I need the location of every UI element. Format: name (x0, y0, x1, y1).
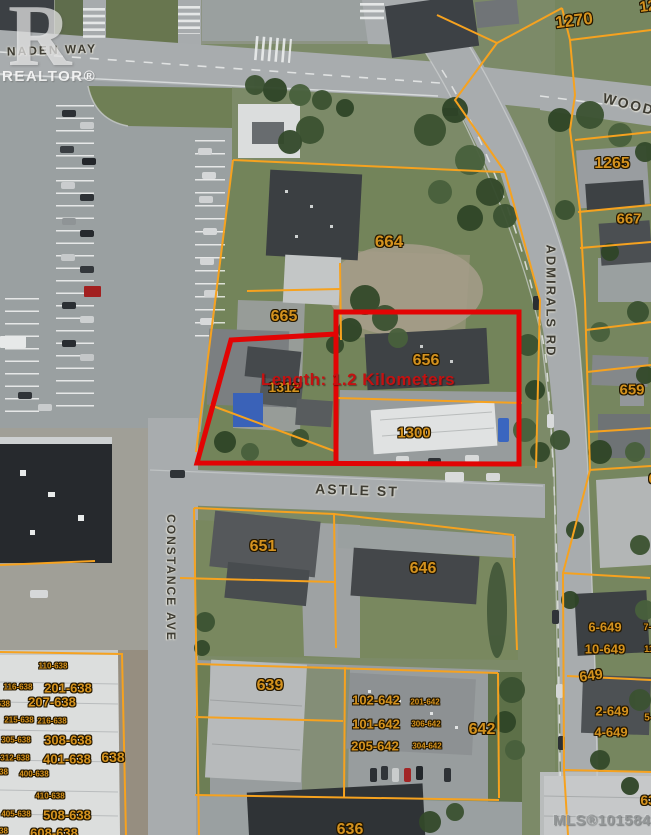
measurement-label: Length: 1.2 Kilometers (261, 370, 455, 390)
mls-watermark: MLS®1015842 (553, 812, 651, 829)
realtor-logo-text: REALTOR® (2, 68, 96, 85)
aerial-map: 1270120126566766466565613121300659657651… (0, 0, 651, 835)
satellite-layer (0, 0, 651, 835)
